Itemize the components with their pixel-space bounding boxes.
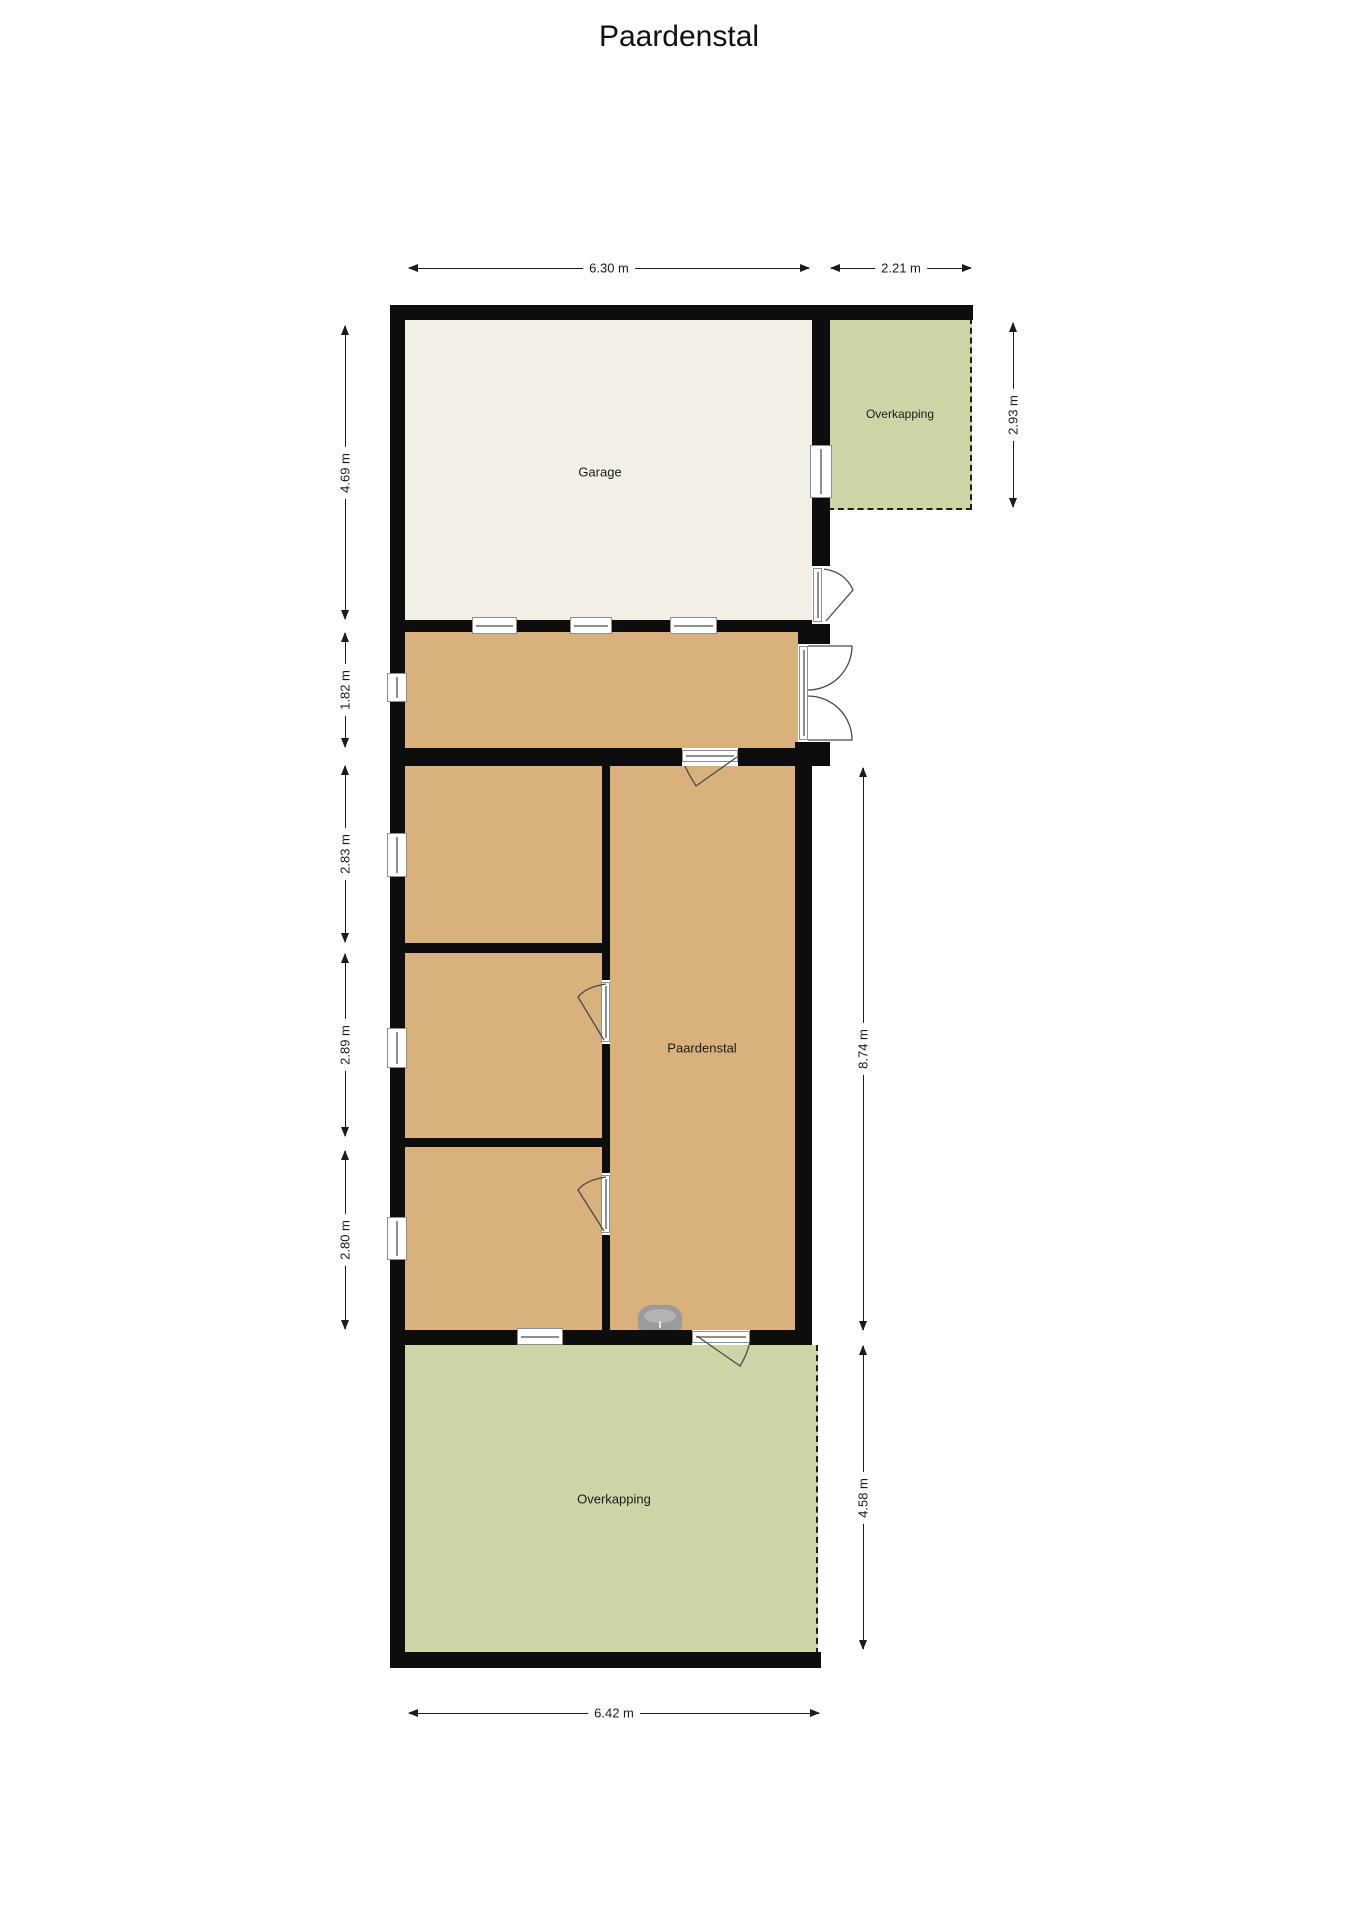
window-stall1-left xyxy=(387,833,407,877)
dim-garage-width: 6.30 m xyxy=(408,263,810,273)
arrow-down-icon xyxy=(859,1640,867,1650)
room-stall-2 xyxy=(403,948,606,1144)
room-stall-3 xyxy=(403,1144,606,1334)
dim-label: 4.58 m xyxy=(856,1472,871,1524)
arrow-down-icon xyxy=(859,1321,867,1331)
dim-overkapping-top-width: 2.21 m xyxy=(830,263,972,273)
dim-label: 2.80 m xyxy=(338,1214,353,1266)
water-trough xyxy=(638,1305,682,1330)
dim-label: 6.42 m xyxy=(588,1706,640,1721)
dim-overkapping-top-height: 2.93 m xyxy=(1008,322,1018,508)
dim-stall2-height: 2.89 m xyxy=(340,953,350,1137)
window-garage-corridor-2 xyxy=(570,617,612,634)
arrow-left-icon xyxy=(408,264,418,272)
dim-overkapping-bottom-height: 4.58 m xyxy=(858,1345,868,1650)
arrow-right-icon xyxy=(962,264,972,272)
window-garage-right xyxy=(810,445,832,498)
plan-title: Paardenstal xyxy=(0,20,1358,54)
dim-bottom-width: 6.42 m xyxy=(408,1708,820,1718)
window-stall2-left xyxy=(387,1028,407,1068)
wall-corridor-right-upper xyxy=(798,628,830,644)
label-garage: Garage xyxy=(578,465,621,480)
arrow-down-icon xyxy=(1009,498,1017,508)
wall-left xyxy=(390,305,405,1668)
door-leaf-stall2 xyxy=(601,982,610,1042)
floor-plan-page: Paardenstal xyxy=(0,0,1358,1920)
arrow-up-icon xyxy=(341,765,349,775)
dim-label: 2.89 m xyxy=(338,1019,353,1071)
door-leaf-corridor xyxy=(682,750,738,762)
dim-stall1-height: 2.83 m xyxy=(340,765,350,943)
arrow-up-icon xyxy=(341,632,349,642)
door-leaf-double-door xyxy=(799,646,808,740)
dim-label: 4.69 m xyxy=(338,447,353,499)
wall-top xyxy=(390,305,973,320)
dim-label: 6.30 m xyxy=(583,261,635,276)
wall-corridor-bottom xyxy=(390,748,812,766)
arrow-down-icon xyxy=(341,933,349,943)
window-stall3-left xyxy=(387,1217,407,1260)
door-leaf-stall3 xyxy=(601,1175,610,1233)
dim-paardenstal-height: 8.74 m xyxy=(858,767,868,1331)
arrow-down-icon xyxy=(341,610,349,620)
arrow-up-icon xyxy=(1009,322,1017,332)
window-stalls-bottom xyxy=(517,1328,563,1345)
wall-right-lower xyxy=(795,748,812,1345)
arrow-left-icon xyxy=(408,1709,418,1717)
label-overkapping-top: Overkapping xyxy=(866,407,934,421)
arrow-right-icon xyxy=(810,1709,820,1717)
wall-stall-divider-2 xyxy=(405,1138,610,1147)
arrow-up-icon xyxy=(859,1345,867,1355)
label-paardenstal: Paardenstal xyxy=(667,1041,736,1056)
room-corridor xyxy=(403,624,802,752)
wall-overkapping-bottom xyxy=(390,1652,821,1668)
dim-label: 1.82 m xyxy=(338,664,353,716)
wall-stall-divider-1 xyxy=(405,943,610,953)
dim-corridor-height: 1.82 m xyxy=(340,632,350,748)
dim-label: 2.93 m xyxy=(1006,389,1021,441)
arrow-up-icon xyxy=(341,953,349,963)
dim-garage-height: 4.69 m xyxy=(340,325,350,620)
arrow-up-icon xyxy=(341,1150,349,1160)
dim-label: 2.21 m xyxy=(875,261,927,276)
arrow-down-icon xyxy=(341,1320,349,1330)
window-garage-corridor-3 xyxy=(670,617,717,634)
window-corridor-left xyxy=(387,673,407,702)
door-leaf-back xyxy=(692,1331,750,1343)
arrow-right-icon xyxy=(800,264,810,272)
dim-label: 8.74 m xyxy=(856,1023,871,1075)
arrow-up-icon xyxy=(859,767,867,777)
arrow-down-icon xyxy=(341,738,349,748)
door-leaf-garage-side xyxy=(813,568,822,622)
water-trough-drain xyxy=(659,1321,661,1328)
dim-stall3-height: 2.80 m xyxy=(340,1150,350,1330)
arrow-down-icon xyxy=(341,1127,349,1137)
window-garage-corridor-1 xyxy=(472,617,517,634)
arrow-up-icon xyxy=(341,325,349,335)
label-overkapping-bottom: Overkapping xyxy=(577,1492,651,1507)
room-stall-1 xyxy=(403,760,606,948)
wall-stall-partition xyxy=(602,766,610,1345)
dim-label: 2.83 m xyxy=(338,828,353,880)
arrow-left-icon xyxy=(830,264,840,272)
